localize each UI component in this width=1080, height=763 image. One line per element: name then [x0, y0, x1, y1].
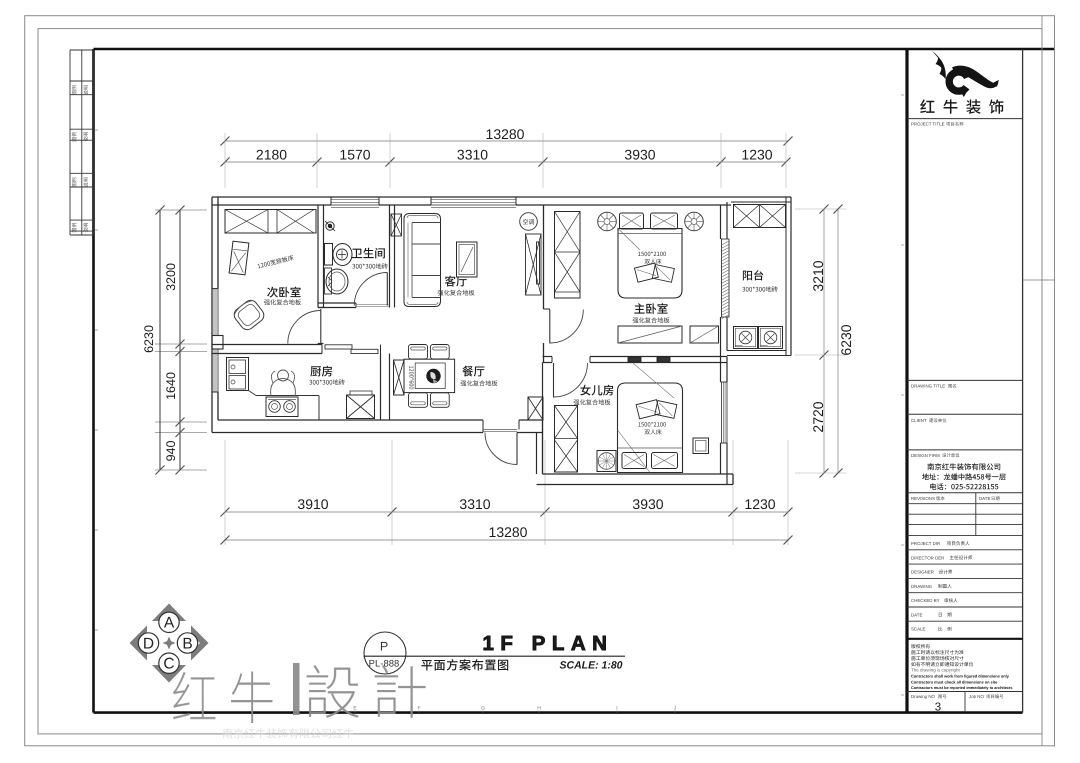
svg-text:Contractors must be reported i: Contractors must be reported immediately…	[911, 686, 1012, 690]
svg-text:3930: 3930	[632, 496, 663, 512]
svg-text:DRAWING: DRAWING	[911, 584, 933, 589]
svg-text:DIRECTOR DER: DIRECTOR DER	[911, 555, 944, 560]
svg-text:1230: 1230	[741, 147, 772, 163]
svg-text:D: D	[143, 635, 154, 652]
svg-text:DESIGNER: DESIGNER	[911, 570, 934, 575]
svg-text:B: B	[182, 635, 192, 652]
svg-text:CLIENT: CLIENT	[911, 418, 927, 423]
svg-text:13280: 13280	[486, 126, 525, 142]
svg-text:DRAWING TITLE: DRAWING TITLE	[911, 384, 945, 389]
svg-text:Job NO: Job NO	[969, 694, 984, 699]
svg-text:3310: 3310	[457, 147, 488, 163]
svg-text:3930: 3930	[624, 147, 655, 163]
svg-text:2180: 2180	[256, 147, 287, 163]
svg-text:3: 3	[935, 702, 941, 714]
svg-text:Contractors shall work from fi: Contractors shall work from figured dime…	[911, 674, 1010, 679]
svg-text:DESIGN FIRM: DESIGN FIRM	[911, 453, 940, 458]
svg-text:Drawing NO: Drawing NO	[911, 694, 935, 699]
svg-text:SCALE: 1:80: SCALE: 1:80	[559, 660, 622, 672]
svg-text:PL-888: PL-888	[369, 659, 400, 670]
svg-text:REVISIONS: REVISIONS	[911, 496, 935, 501]
svg-text:1570: 1570	[339, 147, 370, 163]
svg-text:13280: 13280	[489, 524, 528, 540]
svg-text:940: 940	[164, 441, 178, 462]
svg-text:SCALE: SCALE	[911, 627, 925, 632]
svg-text:DATE: DATE	[911, 612, 922, 617]
svg-text:PROJECT DIR: PROJECT DIR	[911, 541, 940, 546]
svg-text:3200: 3200	[164, 263, 178, 291]
svg-text:DATE: DATE	[979, 496, 990, 501]
svg-text:6230: 6230	[838, 324, 854, 355]
svg-text:PROJECT TITLE: PROJECT TITLE	[911, 122, 945, 127]
svg-text:1640: 1640	[164, 372, 178, 400]
svg-text:C: C	[163, 656, 174, 673]
svg-text:Contractors must check all dim: Contractors must check all dimensions on…	[911, 680, 998, 685]
svg-text:6230: 6230	[142, 325, 156, 353]
svg-text:A: A	[164, 615, 175, 632]
svg-text:1F PLAN: 1F PLAN	[483, 632, 614, 655]
svg-text:1230: 1230	[744, 496, 775, 512]
svg-text:3210: 3210	[810, 260, 826, 291]
svg-text:3910: 3910	[297, 496, 328, 512]
svg-text:3310: 3310	[459, 496, 490, 512]
svg-text:P: P	[380, 640, 388, 654]
svg-text:2720: 2720	[810, 401, 826, 432]
svg-text:CHECKED BY: CHECKED BY	[911, 598, 940, 603]
svg-text:The drawing is copyright: The drawing is copyright	[911, 668, 961, 673]
